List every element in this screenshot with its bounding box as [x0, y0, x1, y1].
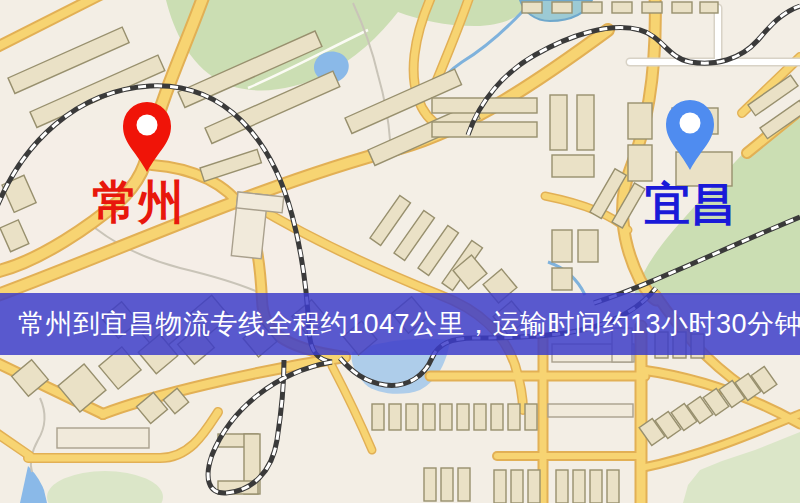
origin-pin-hole [137, 115, 158, 136]
destination-pin-hole [680, 113, 701, 134]
map-canvas[interactable]: 常州 宜昌 [0, 0, 800, 503]
route-info-text: 常州到宜昌物流专线全程约1047公里，运输时间约13小时30分钟. [18, 309, 800, 339]
map-region: 常州 宜昌 常州到宜昌物流专线全程约1047公里，运输时间约13小时30分钟. [0, 0, 800, 503]
water-bottom-left [20, 466, 47, 503]
route-info-banner: 常州到宜昌物流专线全程约1047公里，运输时间约13小时30分钟. [0, 293, 800, 355]
origin-city-label: 常州 [92, 176, 184, 228]
destination-city-label: 宜昌 [644, 178, 736, 230]
park-bottom-left [47, 471, 163, 503]
